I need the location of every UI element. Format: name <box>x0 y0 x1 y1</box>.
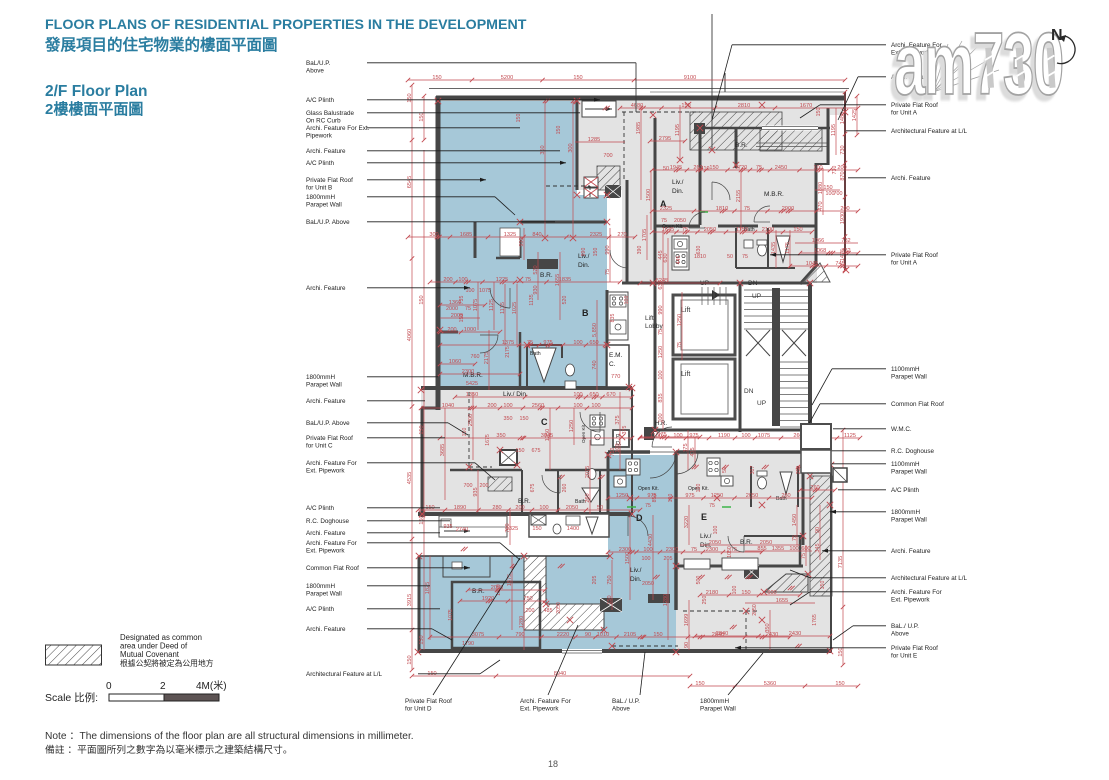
svg-text:835: 835 <box>610 314 616 323</box>
svg-text:75: 75 <box>744 206 750 212</box>
svg-text:200: 200 <box>515 505 524 511</box>
svg-text:150: 150 <box>835 681 844 687</box>
svg-text:2050: 2050 <box>746 493 758 499</box>
svg-text:75: 75 <box>801 553 807 559</box>
svg-text:1050: 1050 <box>727 546 733 558</box>
svg-text:930: 930 <box>533 285 539 294</box>
svg-text:Archi. Feature: Archi. Feature <box>306 530 346 537</box>
svg-text:520: 520 <box>533 265 539 274</box>
svg-text:307: 307 <box>750 466 756 475</box>
svg-text:100: 100 <box>732 586 738 595</box>
svg-text:1250: 1250 <box>616 493 628 499</box>
svg-text:1880: 1880 <box>818 182 824 194</box>
svg-text:2300: 2300 <box>468 414 474 426</box>
svg-text:150: 150 <box>459 314 465 323</box>
svg-text:備註 ：平面圖所列之數字為以毫米標示之建築結構尺寸。: 備註 ：平面圖所列之數字為以毫米標示之建築結構尺寸。 <box>45 743 293 756</box>
svg-text:Private Flat Roof: Private Flat Roof <box>306 177 353 184</box>
svg-text:Parapet Wall: Parapet Wall <box>700 706 736 713</box>
svg-text:1800mmH: 1800mmH <box>306 583 335 590</box>
svg-text:4060: 4060 <box>407 329 413 341</box>
svg-text:200: 200 <box>443 277 452 283</box>
svg-text:90: 90 <box>585 632 591 638</box>
svg-text:1195: 1195 <box>675 124 681 136</box>
svg-text:260: 260 <box>781 493 790 499</box>
svg-text:2450: 2450 <box>775 165 787 171</box>
svg-text:270: 270 <box>617 232 626 238</box>
svg-text:Architectural Feature at L/L: Architectural Feature at L/L <box>891 128 967 135</box>
svg-text:B: B <box>582 308 589 318</box>
svg-text:2300: 2300 <box>666 547 678 553</box>
svg-text:1195: 1195 <box>831 124 837 136</box>
svg-text:150: 150 <box>695 681 704 687</box>
svg-text:600: 600 <box>767 590 776 596</box>
svg-text:100: 100 <box>466 288 475 294</box>
svg-text:1675: 1675 <box>485 434 491 446</box>
svg-text:150: 150 <box>793 227 802 233</box>
svg-text:75: 75 <box>645 503 651 509</box>
svg-text:Ext. Pipework: Ext. Pipework <box>306 468 345 475</box>
svg-text:A/C Plinth: A/C Plinth <box>306 160 334 167</box>
svg-text:Private Flat Roof: Private Flat Roof <box>306 435 353 442</box>
svg-text:Archi. Feature For: Archi. Feature For <box>891 589 942 596</box>
svg-text:2050: 2050 <box>642 581 654 587</box>
svg-text:Common Flat Roof: Common Flat Roof <box>891 401 944 408</box>
svg-text:3685: 3685 <box>440 444 446 456</box>
svg-text:Above: Above <box>891 631 909 638</box>
svg-text:1350: 1350 <box>466 392 478 398</box>
svg-text:1325: 1325 <box>504 232 516 238</box>
svg-text:1100mmH: 1100mmH <box>891 366 920 373</box>
svg-text:1010: 1010 <box>597 632 609 638</box>
svg-text:for Unit C: for Unit C <box>306 443 333 450</box>
svg-text:75: 75 <box>661 218 667 224</box>
svg-text:75: 75 <box>605 269 611 275</box>
svg-text:100: 100 <box>642 556 651 562</box>
svg-text:2050: 2050 <box>752 604 758 616</box>
svg-text:345: 345 <box>815 543 821 552</box>
svg-text:150: 150 <box>432 75 441 81</box>
svg-text:2840: 2840 <box>712 632 724 638</box>
svg-text:2300: 2300 <box>706 547 718 553</box>
svg-text:7135: 7135 <box>838 556 844 568</box>
svg-text:C: C <box>541 417 548 427</box>
svg-text:Architectural Feature at L/L: Architectural Feature at L/L <box>306 671 382 678</box>
svg-text:BaL/U.P. Above: BaL/U.P. Above <box>306 420 350 427</box>
svg-text:100: 100 <box>668 494 674 503</box>
svg-text:N: N <box>1051 27 1063 44</box>
svg-text:1930: 1930 <box>840 212 846 224</box>
svg-text:A/C Plinth: A/C Plinth <box>891 487 919 494</box>
svg-text:Architectural Feature at L/L: Architectural Feature at L/L <box>891 575 967 582</box>
svg-text:150: 150 <box>419 425 425 434</box>
svg-text:1800mmH: 1800mmH <box>700 698 729 705</box>
svg-text:485: 485 <box>544 608 553 614</box>
svg-text:1250: 1250 <box>545 429 551 441</box>
svg-text:675: 675 <box>532 448 541 454</box>
svg-text:1125: 1125 <box>844 433 856 439</box>
svg-text:1100mmH: 1100mmH <box>891 461 920 468</box>
svg-text:8940: 8940 <box>554 671 566 677</box>
svg-text:850: 850 <box>652 494 658 503</box>
svg-text:1075: 1075 <box>758 433 770 439</box>
svg-text:根據公契將被定為公用地方: 根據公契將被定為公用地方 <box>120 658 214 668</box>
svg-text:Archi. Feature: Archi. Feature <box>306 626 346 633</box>
svg-text:470: 470 <box>818 201 824 210</box>
svg-text:UP: UP <box>757 400 766 407</box>
svg-text:2050: 2050 <box>566 505 578 511</box>
svg-text:150: 150 <box>607 595 613 604</box>
svg-text:250: 250 <box>702 596 708 605</box>
svg-text:BaL./ U.P.: BaL./ U.P. <box>891 623 919 630</box>
svg-text:2175: 2175 <box>505 346 511 358</box>
svg-text:1435: 1435 <box>771 242 777 254</box>
svg-text:730: 730 <box>832 166 838 175</box>
svg-text:for Unit E: for Unit E <box>891 653 917 660</box>
svg-text:500: 500 <box>696 576 702 585</box>
svg-text:200: 200 <box>526 608 535 614</box>
svg-text:3915: 3915 <box>407 594 413 606</box>
svg-text:Archi. Feature For: Archi. Feature For <box>306 460 357 467</box>
svg-text:205: 205 <box>592 576 598 585</box>
svg-text:100: 100 <box>539 505 548 511</box>
svg-text:2175: 2175 <box>484 352 490 364</box>
svg-text:150: 150 <box>741 590 750 596</box>
svg-text:700: 700 <box>834 191 843 197</box>
svg-text:Din.: Din. <box>578 262 590 269</box>
svg-text:100: 100 <box>573 403 582 409</box>
svg-text:A/C Plinth: A/C Plinth <box>306 97 334 104</box>
svg-text:840: 840 <box>532 232 541 238</box>
svg-text:2050: 2050 <box>556 602 562 614</box>
svg-text:B.R.: B.R. <box>735 142 748 149</box>
svg-text:520: 520 <box>562 296 568 305</box>
svg-text:75: 75 <box>525 277 531 283</box>
svg-text:Parapet Wall: Parapet Wall <box>306 382 342 389</box>
svg-text:Archi. Feature For: Archi. Feature For <box>306 540 357 547</box>
svg-text:2105: 2105 <box>624 632 636 638</box>
svg-text:730: 730 <box>840 145 846 154</box>
svg-text:350: 350 <box>504 416 513 422</box>
svg-text:260: 260 <box>562 484 568 493</box>
svg-text:100: 100 <box>658 413 664 422</box>
svg-text:935: 935 <box>473 487 479 496</box>
svg-text:350: 350 <box>765 623 771 632</box>
svg-text:445: 445 <box>676 256 682 265</box>
svg-text:50: 50 <box>727 254 733 260</box>
svg-text:2220: 2220 <box>557 632 569 638</box>
svg-text:Archi. Feature: Archi. Feature <box>891 175 931 182</box>
svg-text:2050: 2050 <box>674 218 686 224</box>
svg-text:100: 100 <box>789 546 798 552</box>
svg-text:1075: 1075 <box>448 609 454 621</box>
svg-text:for Unit D: for Unit D <box>405 706 432 713</box>
svg-text:150: 150 <box>816 108 822 117</box>
svg-text:1699: 1699 <box>684 614 690 626</box>
svg-text:260: 260 <box>585 493 591 502</box>
svg-text:B.R.: B.R. <box>472 588 485 595</box>
svg-text:for Unit B: for Unit B <box>306 185 332 192</box>
svg-text:375: 375 <box>622 426 628 435</box>
svg-text:A/C Plinth: A/C Plinth <box>306 606 334 613</box>
svg-text:M.B.R.: M.B.R. <box>764 191 784 198</box>
svg-text:700: 700 <box>603 153 612 159</box>
svg-text:1280: 1280 <box>519 616 525 628</box>
svg-text:150: 150 <box>419 295 425 304</box>
svg-text:1800mmH: 1800mmH <box>306 194 335 201</box>
svg-text:150: 150 <box>823 185 832 191</box>
svg-text:1068: 1068 <box>814 248 826 254</box>
svg-text:2155: 2155 <box>736 190 742 202</box>
svg-text:BaL/U.P.: BaL/U.P. <box>306 60 331 67</box>
svg-text:1655: 1655 <box>776 598 788 604</box>
svg-text:E.M.: E.M. <box>609 352 623 359</box>
svg-text:B.R.: B.R. <box>540 272 553 279</box>
svg-text:3220: 3220 <box>684 516 690 528</box>
svg-text:Pipework: Pipework <box>306 133 333 140</box>
svg-text:975: 975 <box>689 433 698 439</box>
svg-text:675: 675 <box>530 484 536 493</box>
svg-text:Note ：The dimensions of the fl: Note ：The dimensions of the floor plan a… <box>45 731 414 742</box>
svg-text:Open Kit.: Open Kit. <box>581 424 586 443</box>
svg-text:Scale 比例:: Scale 比例: <box>45 691 98 704</box>
svg-text:am730: am730 <box>894 14 1063 113</box>
svg-text:On RC Curb: On RC Curb <box>306 118 341 125</box>
svg-text:75: 75 <box>792 535 798 541</box>
svg-text:9100: 9100 <box>684 75 696 81</box>
svg-text:6545: 6545 <box>407 176 413 188</box>
svg-text:1000: 1000 <box>464 327 476 333</box>
svg-text:3075: 3075 <box>472 632 484 638</box>
svg-text:DN: DN <box>744 388 754 395</box>
svg-text:Ext. Pipework: Ext. Pipework <box>891 597 930 604</box>
svg-text:5200: 5200 <box>501 75 513 81</box>
svg-text:FLOOR PLANS OF RESIDENTIAL PRO: FLOOR PLANS OF RESIDENTIAL PROPERTIES IN… <box>45 17 527 33</box>
svg-text:990: 990 <box>658 305 664 314</box>
svg-text:Above: Above <box>612 706 630 713</box>
svg-text:Archi. Feature: Archi. Feature <box>306 148 346 155</box>
svg-text:BaL/U.P. Above: BaL/U.P. Above <box>306 219 350 226</box>
svg-text:Private Flat Roof: Private Flat Roof <box>891 252 938 259</box>
svg-text:Glass Balustrade: Glass Balustrade <box>306 110 354 117</box>
svg-text:Ext. Pipework: Ext. Pipework <box>520 706 559 713</box>
svg-text:150: 150 <box>520 416 529 422</box>
svg-text:Liv./: Liv./ <box>630 567 642 574</box>
svg-text:2075: 2075 <box>585 466 591 478</box>
svg-text:C.: C. <box>609 361 616 368</box>
svg-text:735: 735 <box>459 296 465 305</box>
svg-text:Parapet Wall: Parapet Wall <box>306 591 342 598</box>
svg-text:350: 350 <box>540 145 546 154</box>
svg-text:630: 630 <box>696 246 702 255</box>
svg-text:Open Kit.: Open Kit. <box>638 486 659 492</box>
svg-text:1280: 1280 <box>663 594 669 606</box>
svg-text:4535: 4535 <box>407 472 413 484</box>
svg-text:Archi. Feature For Ext.: Archi. Feature For Ext. <box>306 125 370 132</box>
svg-text:2/F Floor Plan: 2/F Floor Plan <box>45 83 147 100</box>
svg-text:Mutual Covenant: Mutual Covenant <box>120 650 180 659</box>
svg-text:5360: 5360 <box>764 681 776 687</box>
svg-text:Lift: Lift <box>681 371 690 378</box>
svg-text:100: 100 <box>713 526 719 535</box>
svg-text:200: 200 <box>447 327 456 333</box>
svg-text:Parapet Wall: Parapet Wall <box>891 374 927 381</box>
svg-text:150: 150 <box>838 647 844 656</box>
svg-text:100: 100 <box>573 340 582 346</box>
svg-text:100: 100 <box>658 370 664 379</box>
svg-text:855: 855 <box>757 546 766 552</box>
svg-text:1250: 1250 <box>658 346 664 358</box>
svg-text:790: 790 <box>515 632 524 638</box>
svg-text:350: 350 <box>496 433 505 439</box>
svg-text:1685: 1685 <box>460 232 472 238</box>
svg-text:150: 150 <box>419 635 425 644</box>
svg-text:0: 0 <box>106 681 112 692</box>
svg-text:2795: 2795 <box>659 136 671 142</box>
svg-text:1400: 1400 <box>567 526 579 532</box>
svg-text:1800mmH: 1800mmH <box>891 509 920 516</box>
svg-text:760: 760 <box>471 354 480 360</box>
svg-text:1425: 1425 <box>852 109 858 121</box>
svg-text:732: 732 <box>841 238 850 244</box>
svg-text:90: 90 <box>684 642 690 648</box>
svg-text:150: 150 <box>407 93 413 102</box>
svg-text:100: 100 <box>643 547 652 553</box>
svg-text:630: 630 <box>658 280 664 289</box>
svg-text:發展項目的住宅物業的樓面平面圖: 發展項目的住宅物業的樓面平面圖 <box>44 35 278 54</box>
svg-text:Parapet Wall: Parapet Wall <box>891 469 927 476</box>
svg-text:Ext. Pipework: Ext. Pipework <box>306 548 345 555</box>
svg-text:1250: 1250 <box>569 420 575 432</box>
svg-text:1500: 1500 <box>646 189 652 201</box>
svg-text:2樓樓面平面圖: 2樓樓面平面圖 <box>45 100 143 118</box>
svg-text:1375: 1375 <box>502 340 514 346</box>
svg-text:4430: 4430 <box>648 534 654 546</box>
svg-text:75: 75 <box>465 306 471 312</box>
svg-text:1060: 1060 <box>449 359 461 365</box>
svg-text:150: 150 <box>516 114 522 123</box>
svg-text:2: 2 <box>160 681 166 692</box>
svg-text:1705: 1705 <box>642 229 648 241</box>
svg-text:150: 150 <box>820 581 826 590</box>
svg-text:75: 75 <box>677 342 683 348</box>
svg-text:2300: 2300 <box>462 369 474 375</box>
svg-text:280: 280 <box>492 505 501 511</box>
svg-text:700: 700 <box>464 483 473 489</box>
svg-text:150: 150 <box>516 448 525 454</box>
svg-text:A/C Plinth: A/C Plinth <box>306 505 334 512</box>
svg-text:205: 205 <box>664 556 673 562</box>
svg-text:150: 150 <box>653 632 662 638</box>
svg-text:UP: UP <box>700 280 709 287</box>
svg-text:1890: 1890 <box>454 505 466 511</box>
svg-text:Din.: Din. <box>630 576 642 583</box>
svg-text:150: 150 <box>532 526 541 532</box>
svg-text:375: 375 <box>683 443 689 452</box>
svg-text:50: 50 <box>597 505 603 511</box>
svg-text:1040: 1040 <box>442 403 454 409</box>
svg-text:835: 835 <box>658 393 664 402</box>
svg-text:1765: 1765 <box>812 614 818 626</box>
svg-text:1800mmH: 1800mmH <box>306 374 335 381</box>
svg-text:50: 50 <box>663 166 669 172</box>
svg-text:150: 150 <box>573 75 582 81</box>
svg-text:BaL./ U.P.: BaL./ U.P. <box>612 698 640 705</box>
svg-text:Din.: Din. <box>672 188 684 195</box>
svg-text:1250: 1250 <box>677 314 683 326</box>
svg-text:150: 150 <box>593 248 599 257</box>
svg-text:1985: 1985 <box>636 122 642 134</box>
svg-text:2810: 2810 <box>738 103 750 109</box>
svg-text:930: 930 <box>519 237 525 246</box>
svg-text:150: 150 <box>709 165 718 171</box>
svg-text:1355: 1355 <box>772 546 784 552</box>
svg-text:150: 150 <box>407 655 413 664</box>
svg-text:90: 90 <box>815 527 821 533</box>
svg-text:Bath: Bath <box>530 351 541 357</box>
svg-text:75: 75 <box>691 547 697 553</box>
svg-text:1175: 1175 <box>785 242 791 254</box>
svg-text:Liv./: Liv./ <box>672 179 684 186</box>
svg-text:R.C. Doghouse: R.C. Doghouse <box>306 518 350 525</box>
svg-text:Parapet Wall: Parapet Wall <box>891 517 927 524</box>
svg-text:1125: 1125 <box>489 299 495 311</box>
svg-text:Archi. Feature: Archi. Feature <box>306 285 346 292</box>
svg-text:1285: 1285 <box>588 137 600 143</box>
svg-text:630: 630 <box>663 253 669 262</box>
svg-text:870: 870 <box>840 171 846 180</box>
svg-text:975: 975 <box>685 493 694 499</box>
svg-text:R.C. Doghouse: R.C. Doghouse <box>891 448 935 455</box>
svg-text:670: 670 <box>606 392 615 398</box>
svg-text:100: 100 <box>624 296 630 305</box>
svg-text:100: 100 <box>741 433 750 439</box>
svg-text:18: 18 <box>548 759 558 769</box>
svg-text:990: 990 <box>581 248 587 257</box>
svg-text:740: 740 <box>592 360 598 369</box>
svg-text:Archi. Feature: Archi. Feature <box>891 548 931 555</box>
svg-text:2325: 2325 <box>660 206 672 212</box>
svg-text:Common Flat Roof: Common Flat Roof <box>306 565 359 572</box>
svg-text:300: 300 <box>568 143 574 152</box>
svg-text:5,850: 5,850 <box>592 323 598 337</box>
svg-text:75: 75 <box>658 329 664 335</box>
svg-text:UP: UP <box>752 293 761 300</box>
svg-text:750: 750 <box>607 575 613 584</box>
svg-text:1450: 1450 <box>792 514 798 526</box>
svg-text:2050: 2050 <box>709 540 721 546</box>
svg-text:Archi. Feature For: Archi. Feature For <box>520 698 571 705</box>
svg-text:DN: DN <box>748 280 758 287</box>
svg-text:Parapet Wall: Parapet Wall <box>306 202 342 209</box>
svg-text:1670: 1670 <box>800 103 812 109</box>
svg-text:390: 390 <box>637 246 643 255</box>
svg-text:1190: 1190 <box>718 433 730 439</box>
svg-text:100: 100 <box>696 484 702 493</box>
svg-text:2000: 2000 <box>446 306 458 312</box>
svg-text:1135: 1135 <box>500 302 506 314</box>
svg-text:Private Flat Roof: Private Flat Roof <box>405 698 452 705</box>
svg-text:W.M.C.: W.M.C. <box>891 426 912 433</box>
svg-text:150: 150 <box>556 126 562 135</box>
svg-text:1655: 1655 <box>555 274 561 286</box>
svg-text:770: 770 <box>611 374 620 380</box>
svg-text:1160: 1160 <box>650 433 662 439</box>
svg-text:1075: 1075 <box>473 299 479 311</box>
svg-text:1825: 1825 <box>425 582 431 594</box>
svg-text:200: 200 <box>480 483 489 489</box>
svg-text:Private Flat Roof: Private Flat Roof <box>891 645 938 652</box>
svg-text:Archi. Feature: Archi. Feature <box>306 398 346 405</box>
